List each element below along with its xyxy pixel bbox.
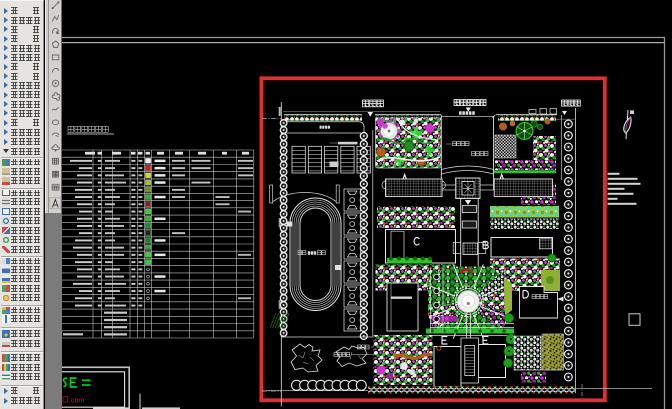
svg-text:.com: .com bbox=[69, 398, 84, 405]
